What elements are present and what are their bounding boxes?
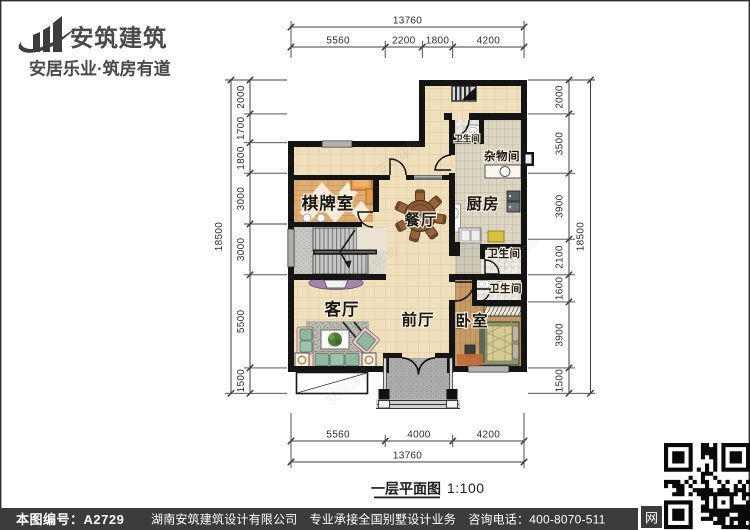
svg-text:湖南安筑建筑设计有限公司 专业承接全国别墅设计业务 咨询电话: 湖南安筑建筑设计有限公司 专业承接全国别墅设计业务 咨询电话：400-8070-… bbox=[151, 512, 606, 527]
svg-text:1500: 1500 bbox=[236, 369, 247, 393]
svg-text:安筑建筑: 安筑建筑 bbox=[70, 24, 167, 51]
svg-text:2200: 2200 bbox=[392, 36, 416, 47]
svg-text:13760: 13760 bbox=[393, 451, 422, 462]
svg-text:18500: 18500 bbox=[214, 222, 225, 251]
svg-text:网: 网 bbox=[645, 511, 658, 526]
svg-text:3900: 3900 bbox=[555, 323, 566, 347]
svg-text:18500: 18500 bbox=[576, 222, 587, 251]
svg-text:厨房: 厨房 bbox=[466, 194, 499, 213]
svg-text:1500: 1500 bbox=[555, 369, 566, 393]
svg-text:前厅: 前厅 bbox=[401, 310, 434, 329]
svg-text:1700: 1700 bbox=[236, 116, 247, 140]
svg-text:5560: 5560 bbox=[326, 36, 350, 47]
svg-text:卧室: 卧室 bbox=[455, 311, 488, 330]
svg-text:1600: 1600 bbox=[555, 276, 566, 300]
svg-text:2100: 2100 bbox=[555, 245, 566, 269]
svg-text:4200: 4200 bbox=[477, 430, 501, 441]
svg-text:卫生间: 卫生间 bbox=[489, 282, 522, 295]
svg-text:1:100: 1:100 bbox=[447, 480, 485, 496]
svg-text:杂物间: 杂物间 bbox=[484, 149, 520, 163]
svg-text:1800: 1800 bbox=[426, 36, 450, 47]
svg-text:3500: 3500 bbox=[555, 132, 566, 156]
svg-text:棋牌室: 棋牌室 bbox=[302, 193, 355, 213]
svg-text:卫生间: 卫生间 bbox=[454, 134, 480, 144]
svg-text:4000: 4000 bbox=[407, 430, 431, 441]
svg-text:3900: 3900 bbox=[555, 194, 566, 218]
svg-text:5560: 5560 bbox=[326, 430, 350, 441]
svg-text:客厅: 客厅 bbox=[324, 299, 360, 319]
svg-text:1800: 1800 bbox=[236, 146, 247, 170]
svg-text:餐厅: 餐厅 bbox=[403, 210, 437, 229]
svg-text:2000: 2000 bbox=[236, 85, 247, 109]
svg-text:一层平面图: 一层平面图 bbox=[371, 481, 441, 497]
svg-text:3000: 3000 bbox=[236, 187, 247, 211]
svg-text:13760: 13760 bbox=[393, 16, 422, 27]
svg-text:4200: 4200 bbox=[477, 36, 501, 47]
svg-text:3000: 3000 bbox=[236, 238, 247, 262]
svg-text:2000: 2000 bbox=[555, 85, 566, 109]
svg-text:安居乐业·筑房有道: 安居乐业·筑房有道 bbox=[29, 59, 171, 79]
svg-text:5500: 5500 bbox=[236, 309, 247, 333]
svg-text:本图编号：A2729: 本图编号：A2729 bbox=[16, 512, 124, 527]
